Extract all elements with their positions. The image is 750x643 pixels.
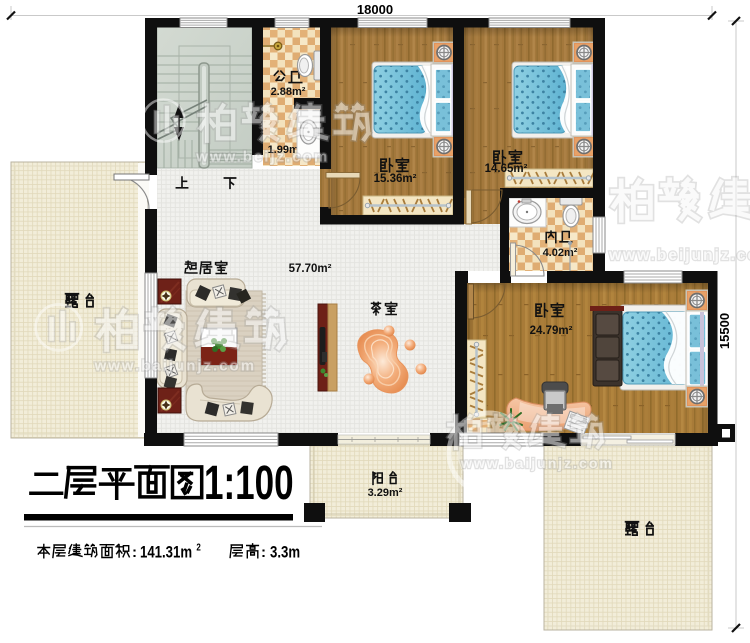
svg-text:4.02m²: 4.02m² (543, 247, 578, 259)
svg-text:www.beijunjz.com: www.beijunjz.com (608, 247, 750, 264)
svg-text:www.beijz.com: www.beijz.com (195, 149, 329, 166)
svg-text::: : (132, 544, 137, 561)
svg-text:57.70m²: 57.70m² (289, 263, 332, 275)
svg-text:www.baijunjz.com: www.baijunjz.com (460, 455, 614, 471)
svg-text:2: 2 (196, 542, 200, 553)
svg-text::: : (261, 544, 266, 561)
svg-text:18000: 18000 (357, 2, 393, 17)
svg-text:15.36m²: 15.36m² (374, 173, 417, 185)
svg-text:3.3m: 3.3m (270, 543, 300, 562)
svg-text:141.31m: 141.31m (140, 543, 192, 562)
svg-text:1:100: 1:100 (204, 456, 294, 510)
svg-text:2.88m²: 2.88m² (271, 86, 306, 98)
svg-text:www.baijunjz.com: www.baijunjz.com (94, 358, 256, 375)
svg-text:14.65m²: 14.65m² (485, 163, 528, 175)
svg-text:24.79m²: 24.79m² (530, 325, 573, 337)
svg-text:3.29m²: 3.29m² (368, 487, 403, 499)
svg-text:15500: 15500 (717, 313, 732, 349)
